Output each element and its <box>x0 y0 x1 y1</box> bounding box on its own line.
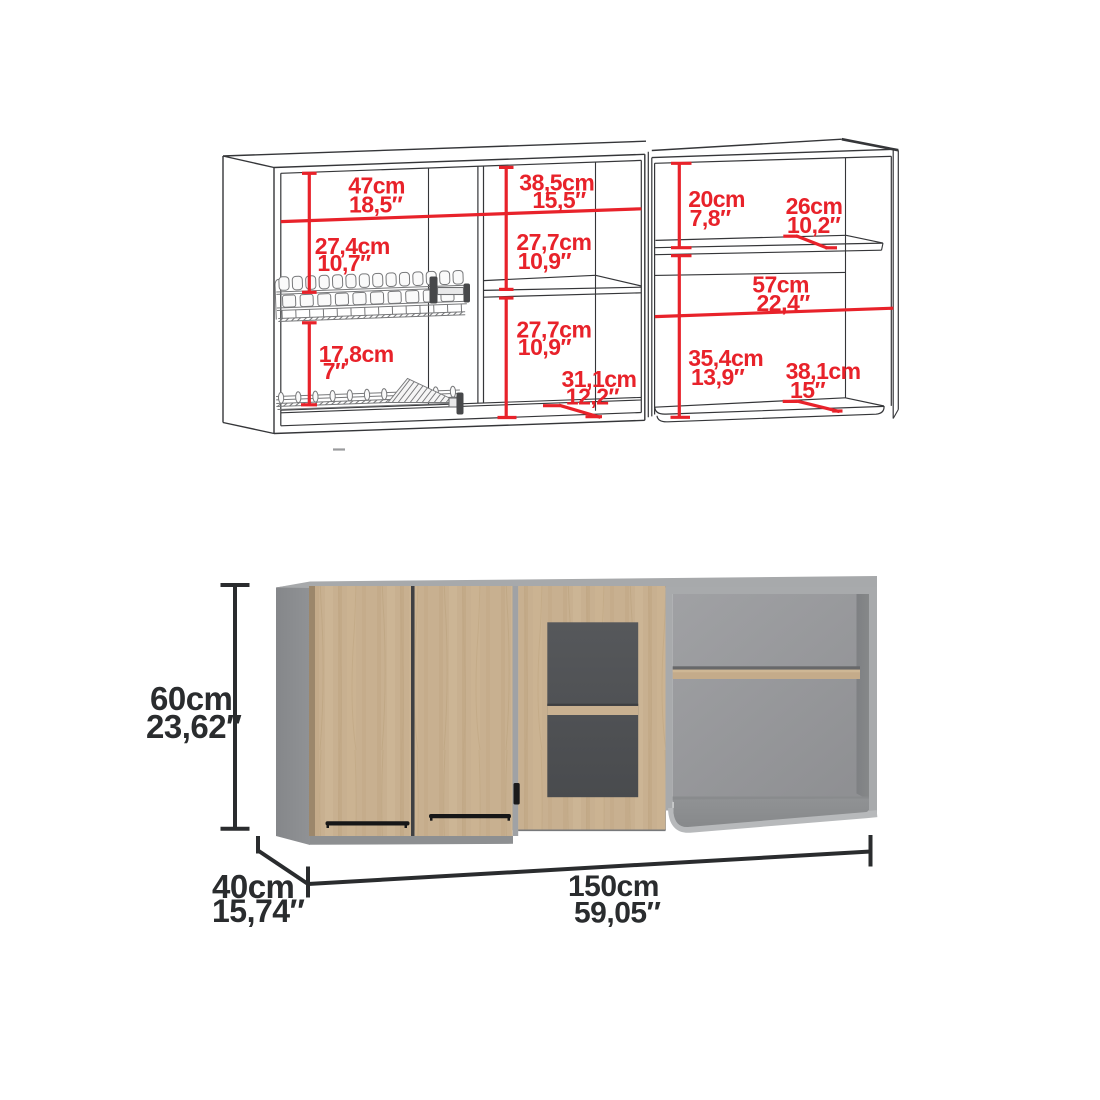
svg-text:10,9″: 10,9″ <box>518 248 572 274</box>
svg-text:59,05″: 59,05″ <box>574 897 661 930</box>
svg-text:22,4″: 22,4″ <box>757 290 811 316</box>
svg-text:15,74″: 15,74″ <box>212 893 305 929</box>
svg-text:7″: 7″ <box>323 358 346 384</box>
svg-text:7,8″: 7,8″ <box>690 205 731 231</box>
svg-text:18,5″: 18,5″ <box>349 191 403 217</box>
svg-text:23,62″: 23,62″ <box>146 708 242 745</box>
svg-text:15″: 15″ <box>790 377 826 403</box>
svg-text:15,5″: 15,5″ <box>532 187 586 213</box>
svg-text:10,2″: 10,2″ <box>787 212 841 238</box>
svg-text:12,2″: 12,2″ <box>566 383 620 409</box>
svg-text:13,9″: 13,9″ <box>691 364 745 390</box>
svg-text:10,9″: 10,9″ <box>518 334 572 360</box>
svg-text:10,7″: 10,7″ <box>317 250 371 276</box>
